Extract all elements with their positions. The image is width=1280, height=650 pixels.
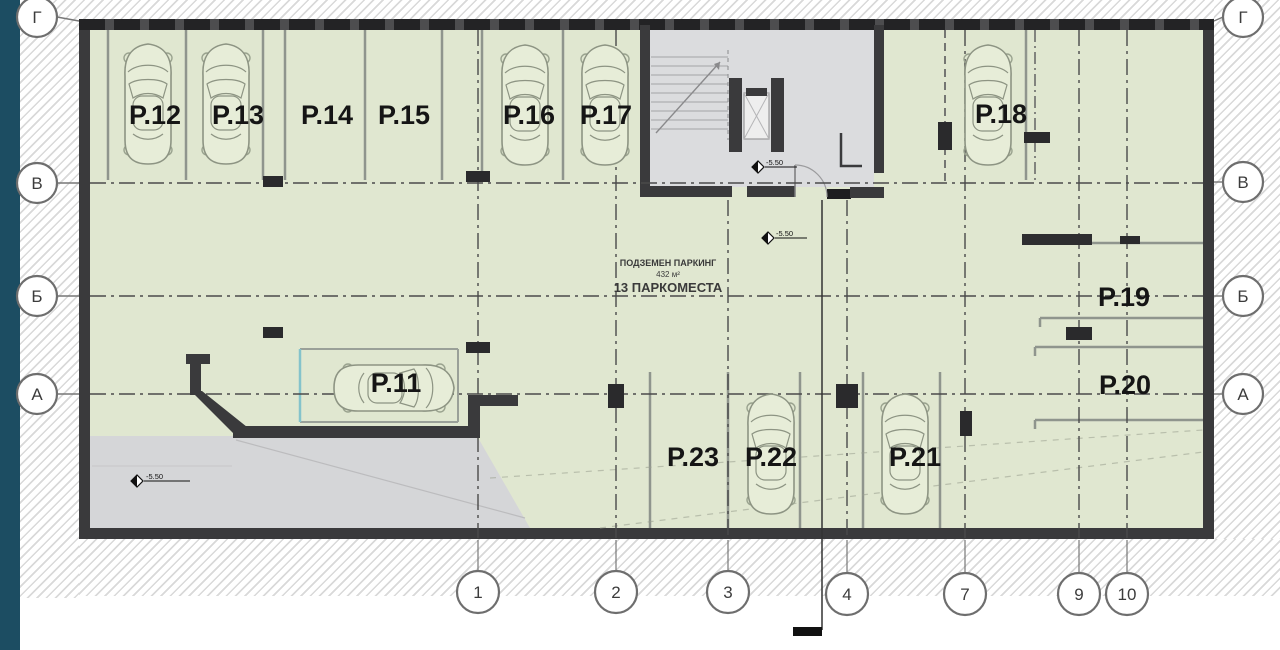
parking-spot-label: P.20: [1099, 370, 1151, 400]
level-marker-value: -5.50: [146, 472, 163, 481]
grid-axis-marker: Г: [1238, 8, 1247, 27]
grid-column-markers: 1 2 3 4 7 9 10: [457, 540, 1148, 615]
grid-axis-marker: А: [31, 385, 43, 404]
grid-row-markers-left: Г В Б А: [17, 0, 79, 414]
parking-spot-label: P.22: [745, 442, 797, 472]
grid-axis-marker: 4: [842, 585, 851, 604]
grid-axis-marker: Г: [32, 8, 41, 27]
level-marker: -5.50: [762, 229, 807, 244]
grid-axis-marker: Б: [31, 287, 42, 306]
area-label-line1: ПОДЗЕМЕН ПАРКИНГ: [620, 258, 717, 268]
grid-axis-marker: А: [1237, 385, 1249, 404]
parking-spot-label: P.14: [301, 100, 353, 130]
section-marker: [793, 200, 822, 636]
parking-spot-label: P.23: [667, 442, 719, 472]
parking-spot-label: P.17: [580, 100, 632, 130]
grid-axis-marker: 7: [960, 585, 969, 604]
grid-axis-marker: 1: [473, 583, 482, 602]
grid-axis-marker: 9: [1074, 585, 1083, 604]
parking-spot-label: P.16: [503, 100, 555, 130]
parking-spot-label: P.15: [378, 100, 430, 130]
grid-axis-marker: В: [1237, 173, 1248, 192]
area-label: ПОДЗЕМЕН ПАРКИНГ 432 м² 13 ПАРКОМЕСТА: [614, 258, 723, 295]
plan-drawing: P.12 P.13 P.14 P.15 P.16 P.17 P.18 P.11 …: [0, 0, 1280, 650]
grid-row-markers-right: Г В Б А: [1214, 0, 1263, 414]
parking-spot-label: P.12: [129, 100, 181, 130]
level-marker-value: -5.50: [766, 158, 783, 167]
grid-axis-marker: 10: [1118, 585, 1137, 604]
level-marker-value: -5.50: [776, 229, 793, 238]
grid-axis-marker: 3: [723, 583, 732, 602]
parking-spot-label: P.21: [889, 442, 941, 472]
stair-core: [640, 25, 884, 199]
grid-axis-marker: 2: [611, 583, 620, 602]
area-label-line3: 13 ПАРКОМЕСТА: [614, 280, 723, 295]
stall-dividers-right: [1022, 243, 1203, 429]
parking-spot-label: P.19: [1098, 282, 1150, 312]
grid-axis-marker: Б: [1237, 287, 1248, 306]
ramp-area: [90, 436, 530, 528]
floor-plan-screenshot: P.12 P.13 P.14 P.15 P.16 P.17 P.18 P.11 …: [0, 0, 1280, 650]
parking-spot-label: P.11: [371, 368, 422, 398]
area-label-line2: 432 м²: [656, 270, 680, 279]
parking-spot-label: P.13: [212, 100, 264, 130]
grid-axis-marker: В: [31, 174, 42, 193]
parking-spot-label: P.18: [975, 99, 1027, 129]
